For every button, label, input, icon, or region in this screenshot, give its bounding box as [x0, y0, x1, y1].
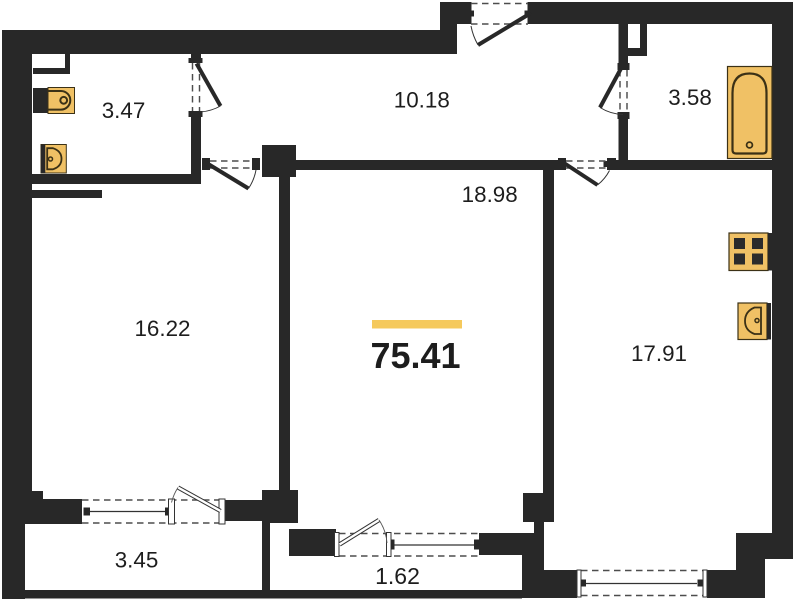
svg-text:18.98: 18.98: [462, 182, 518, 207]
svg-text:17.91: 17.91: [631, 341, 687, 366]
svg-text:1.62: 1.62: [375, 563, 420, 589]
svg-text:10.18: 10.18: [394, 88, 450, 113]
svg-text:3.58: 3.58: [668, 85, 712, 110]
svg-text:75.41: 75.41: [370, 335, 460, 376]
svg-text:16.22: 16.22: [134, 316, 190, 341]
svg-text:3.45: 3.45: [115, 548, 159, 573]
svg-text:3.47: 3.47: [102, 98, 146, 123]
